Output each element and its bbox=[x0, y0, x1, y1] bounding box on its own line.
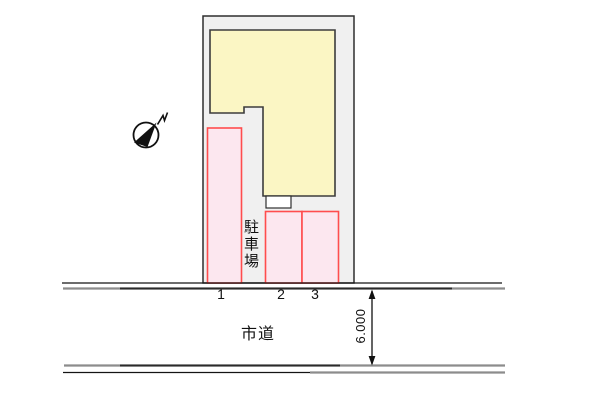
road-width-dimension-label: 6.000 bbox=[353, 301, 369, 351]
road-width-dimension-arrow bbox=[369, 290, 376, 366]
parking-space-2-number: 2 bbox=[271, 286, 291, 302]
road-label: 市道 bbox=[232, 320, 284, 344]
parking-space-3 bbox=[302, 212, 339, 284]
compass-feather bbox=[158, 113, 168, 125]
parking-space-3-number: 3 bbox=[305, 286, 325, 302]
site-plan-canvas: 駐車場 1 2 3 市道 6.000 bbox=[0, 0, 600, 400]
entrance-step bbox=[266, 196, 291, 208]
parking-space-1-number: 1 bbox=[211, 286, 231, 302]
dimension-arrowhead-bottom bbox=[369, 356, 376, 366]
parking-space-2 bbox=[266, 212, 303, 284]
site-plan-drawing bbox=[0, 0, 600, 400]
parking-area-label: 駐車場 bbox=[241, 219, 259, 270]
parking-space-1 bbox=[208, 128, 242, 283]
dimension-arrowhead-top bbox=[369, 290, 376, 300]
north-arrow-icon bbox=[134, 113, 168, 148]
